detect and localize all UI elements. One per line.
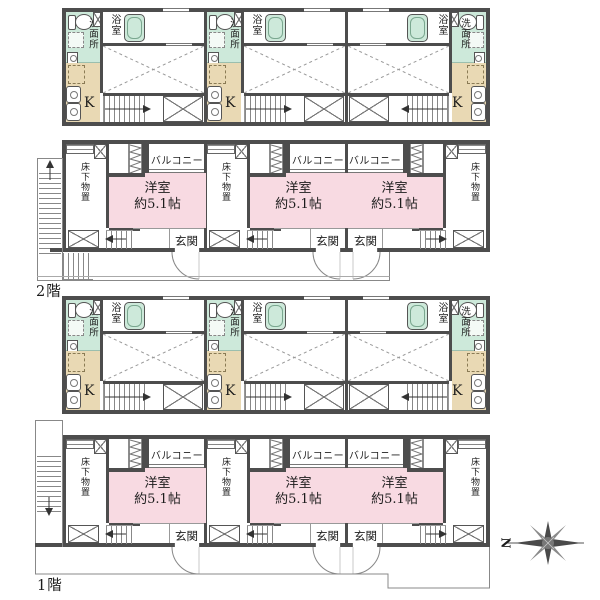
bathroom-label: 浴室	[433, 302, 446, 328]
western-room-label: 洋室 約5.1帖	[250, 181, 347, 214]
kitchen-label: K	[452, 383, 468, 399]
western-room-size: 約5.1帖	[250, 197, 347, 213]
refrigerator-space-icon	[467, 65, 484, 84]
stove-icon	[66, 391, 81, 409]
stairs-up-arrow	[43, 160, 57, 182]
balcony-label: バルコニー	[150, 447, 204, 462]
western-room-size: 約5.1帖	[250, 492, 347, 508]
window	[304, 296, 330, 300]
interior-wall	[443, 144, 446, 228]
dwelling-unit-room-area: 床下物置 バルコニー 洋室 約5.1帖 玄関	[66, 144, 204, 248]
closet-shelves	[207, 439, 235, 449]
void-box	[68, 525, 99, 543]
washing-machine-pan-icon	[468, 320, 484, 336]
void-box	[349, 96, 389, 122]
dwelling-unit-wet-area: 洗面所 浴室 K	[348, 300, 486, 410]
under-floor-storage-label: 床下物置	[74, 162, 88, 220]
kitchen-label: K	[84, 95, 100, 111]
kitchen-sink-icon	[66, 86, 81, 103]
stair-treads	[39, 173, 61, 255]
kitchen-label: K	[225, 383, 241, 399]
interior-wall	[407, 468, 443, 472]
western-room-label: 洋室 約5.1帖	[109, 181, 206, 214]
kitchen-sink-icon	[471, 374, 486, 391]
upper-stair-hatch	[128, 144, 143, 176]
void-box	[163, 384, 203, 410]
interior-wall	[109, 173, 145, 177]
void-box	[304, 384, 344, 410]
exterior-wall	[35, 543, 62, 547]
stairs-direction-arrow	[103, 102, 151, 116]
washing-machine-pan-icon	[468, 32, 484, 48]
stairs-direction-arrow	[244, 102, 292, 116]
kitchen-label: K	[84, 383, 100, 399]
first-floor-walkway-outline	[35, 547, 491, 589]
refrigerator-space-icon	[68, 65, 85, 84]
second-floor-porch-outline	[37, 252, 391, 282]
washing-machine-pan-icon	[209, 32, 225, 48]
interior-wall	[250, 468, 286, 472]
upper-stair-hatch	[128, 439, 143, 471]
window	[163, 296, 189, 300]
dwelling-unit-room-area: 床下物置 バルコニー 洋室 約5.1帖 玄関	[207, 144, 345, 248]
entrance-label: 玄関	[348, 528, 383, 544]
dwelling-unit-room-area: 床下物置 バルコニー 洋室 約5.1帖 玄関	[66, 439, 204, 543]
under-floor-storage-label: 床下物置	[464, 162, 478, 220]
void-box	[209, 525, 240, 543]
western-room-name: 洋室	[250, 476, 347, 492]
stove-icon	[66, 103, 81, 121]
window	[363, 296, 389, 300]
western-room-name: 洋室	[346, 181, 443, 197]
second-floor-label: 2階	[36, 280, 62, 301]
balcony-label: バルコニー	[291, 152, 345, 167]
partition-line	[348, 228, 419, 229]
compass-north-label: N	[498, 538, 512, 549]
upper-stair-hatch	[269, 439, 284, 471]
balcony-label: バルコニー	[348, 152, 402, 167]
bathroom-label: 浴室	[247, 302, 260, 328]
void-area	[103, 334, 204, 381]
dwelling-unit-wet-area: 洗面所 浴室 K	[348, 12, 486, 122]
stove-icon	[207, 103, 222, 121]
interior-wall	[283, 144, 290, 176]
kitchen-sink-icon	[207, 374, 222, 391]
dwelling-unit-room-area: 床下物置 バルコニー 洋室 約5.1帖 玄関	[207, 439, 345, 543]
bathroom-label: 浴室	[106, 302, 119, 328]
interior-wall	[142, 144, 149, 176]
stairs-direction-arrow	[244, 390, 292, 404]
washing-machine-pan-icon	[68, 320, 84, 336]
closet-shelves	[207, 144, 235, 154]
stairs-direction-arrow	[245, 232, 269, 246]
under-floor-storage-label: 床下物置	[215, 457, 229, 515]
western-room-size: 約5.1帖	[346, 197, 443, 213]
void-area	[244, 46, 345, 93]
bathroom-label: 浴室	[433, 14, 446, 40]
interior-wall	[403, 439, 410, 471]
closet-shelves	[458, 144, 486, 154]
void-box	[163, 96, 203, 122]
under-floor-storage-label: 床下物置	[74, 457, 88, 515]
interior-wall	[407, 173, 443, 177]
stairs-direction-arrow	[424, 527, 448, 541]
stairs-direction-arrow	[401, 390, 449, 404]
washing-machine-pan-icon	[68, 32, 84, 48]
floor-plan: 洗面所 浴室 K 洗面所 浴室	[0, 0, 600, 600]
stove-icon	[471, 103, 486, 121]
dwelling-unit-room-area: 床下物置 バルコニー 洋室 約5.1帖 玄関	[348, 144, 486, 248]
refrigerator-space-icon	[209, 65, 226, 84]
void-box	[68, 230, 99, 248]
void-box	[453, 230, 484, 248]
void-area	[244, 334, 345, 381]
second-floor-wet-row: 洗面所 浴室 K 洗面所 浴室	[62, 8, 490, 126]
void-area	[103, 46, 204, 93]
exterior-wall	[50, 248, 62, 252]
stove-icon	[207, 391, 222, 409]
western-room-size: 約5.1帖	[109, 492, 206, 508]
kitchen-sink-icon	[207, 86, 222, 103]
void-area	[348, 334, 449, 381]
balcony-label: バルコニー	[291, 447, 345, 462]
closet-shelves	[458, 439, 486, 449]
stairs-direction-arrow	[245, 527, 269, 541]
dwelling-unit-wet-area: 洗面所 浴室 K	[207, 300, 345, 410]
void-area	[348, 46, 449, 93]
void-box	[209, 230, 240, 248]
closet-shelves	[66, 144, 94, 154]
void-box	[453, 525, 484, 543]
first-floor-wet-row: 洗面所 浴室 K 洗面所 浴室	[62, 296, 490, 414]
bathtub-icon	[407, 14, 428, 42]
entrance-label: 玄関	[348, 233, 383, 249]
dwelling-unit-wet-area: 洗面所 浴室 K	[207, 12, 345, 122]
washing-machine-pan-icon	[209, 320, 225, 336]
dwelling-unit-wet-area: 洗面所 浴室 K	[66, 300, 204, 410]
entrance-label: 玄関	[310, 233, 345, 249]
interior-wall	[250, 173, 286, 177]
western-room-label: 洋室 約5.1帖	[250, 476, 347, 509]
bathtub-icon	[265, 302, 286, 330]
kitchen-sink-icon	[66, 374, 81, 391]
interior-wall	[403, 144, 410, 176]
partition-line	[348, 523, 419, 524]
entrance-label: 玄関	[169, 233, 204, 249]
dwelling-unit-room-area: 床下物置 バルコニー 洋室 約5.1帖 玄関	[348, 439, 486, 543]
bathtub-icon	[124, 302, 145, 330]
western-room-name: 洋室	[250, 181, 347, 197]
window	[163, 8, 189, 12]
stove-icon	[471, 391, 486, 409]
bathroom-label: 浴室	[106, 14, 119, 40]
balcony-label: バルコニー	[348, 447, 402, 462]
kitchen-label: K	[452, 95, 468, 111]
window	[363, 8, 389, 12]
closet-shelves	[66, 439, 94, 449]
entrance-label: 玄関	[310, 528, 345, 544]
western-room-name: 洋室	[346, 476, 443, 492]
toilet-icon	[476, 15, 484, 30]
western-room-label: 洋室 約5.1帖	[346, 476, 443, 509]
western-room-label: 洋室 約5.1帖	[346, 181, 443, 214]
dwelling-unit-wet-area: 洗面所 浴室 K	[66, 12, 204, 122]
duct-shaft	[445, 144, 458, 159]
toilet-icon	[476, 303, 484, 318]
under-floor-storage-label: 床下物置	[464, 457, 478, 515]
bathtub-icon	[265, 14, 286, 42]
void-box	[349, 384, 389, 410]
void-box	[304, 96, 344, 122]
stairs-direction-arrow	[104, 527, 128, 541]
first-floor-room-row: 床下物置 バルコニー 洋室 約5.1帖 玄関	[62, 435, 490, 547]
western-room-name: 洋室	[109, 181, 206, 197]
under-floor-storage-label: 床下物置	[215, 162, 229, 220]
western-room-label: 洋室 約5.1帖	[109, 476, 206, 509]
stairs-direction-arrow	[103, 390, 151, 404]
bathtub-icon	[124, 14, 145, 42]
western-room-name: 洋室	[109, 476, 206, 492]
interior-wall	[109, 468, 145, 472]
stairs-down-arrow	[42, 495, 56, 517]
refrigerator-space-icon	[68, 353, 85, 372]
first-floor-label: 1階	[37, 574, 63, 595]
interior-wall	[283, 439, 290, 471]
bathtub-icon	[407, 302, 428, 330]
entrance-label: 玄関	[169, 528, 204, 544]
upper-stair-hatch	[269, 144, 284, 176]
refrigerator-space-icon	[467, 353, 484, 372]
upper-stair-hatch	[409, 144, 424, 176]
interior-wall	[443, 439, 446, 523]
stairs-direction-arrow	[424, 232, 448, 246]
stairs-direction-arrow	[401, 102, 449, 116]
kitchen-label: K	[225, 95, 241, 111]
bathroom-label: 浴室	[247, 14, 260, 40]
exterior-staircase	[35, 420, 63, 547]
western-room-size: 約5.1帖	[109, 197, 206, 213]
western-room-size: 約5.1帖	[346, 492, 443, 508]
stairs-direction-arrow	[104, 232, 128, 246]
kitchen-sink-icon	[471, 86, 486, 103]
refrigerator-space-icon	[209, 353, 226, 372]
upper-stair-hatch	[409, 439, 424, 471]
window	[304, 8, 330, 12]
duct-shaft	[445, 439, 458, 454]
interior-wall	[142, 439, 149, 471]
second-floor-room-row: 床下物置 バルコニー 洋室 約5.1帖 玄関	[62, 140, 490, 252]
balcony-label: バルコニー	[150, 152, 204, 167]
